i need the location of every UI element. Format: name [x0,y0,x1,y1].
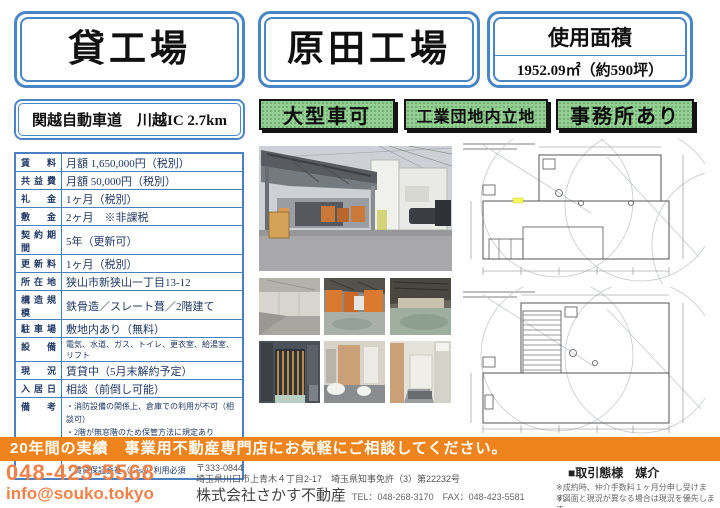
badge-office-available: 事務所あり [556,99,694,130]
phone-number: 048-423-5568 [6,460,155,486]
photo-restroom [324,341,385,403]
table-row-location: 所在地狭山市新狭山一丁目13-12 [16,272,242,290]
access-box: 関越自動車道 川越IC 2.7km [14,99,245,140]
table-row-equipment: 設備電気、水道、ガス、トイレ、更衣室、給湯室、リフト [16,337,242,361]
category-title: 貸工場 [68,31,191,68]
usable-area-value: 1952.09㎡（約590坪） [517,56,663,80]
table-row-structure: 構造規模鉄骨造／スレート葺／2階建て [16,290,242,319]
photo-interior-empty-room [259,278,320,335]
table-row-renewal-fee: 更新料1ヶ月（税別） [16,254,242,272]
table-row-key-money: 礼金1ヶ月（税別） [16,189,242,207]
table-row-common-fee: 共益費月額 50,000円（税別） [16,171,242,189]
property-name-title: 原田工場 [287,31,451,68]
property-flyer: 貸工場 原田工場 使用面積 1952.09㎡（約590坪） 関越自動車道 川越I… [0,0,720,508]
disclaimer-note: ※図面と現況が異なる場合は現況を優先します。 [556,493,720,508]
tel-fax: TEL：048-268-3170 FAX：048-423-5581 [352,490,525,503]
remark-line: ・消防設備の関係上、倉庫での利用が不可（相談可） [66,401,238,427]
property-name-box: 原田工場 [258,11,480,88]
transaction-type: ■取引態様 媒介 [568,464,659,481]
table-row-current-status: 現況賃貸中（5月末解約予定） [16,361,242,379]
access-text: 関越自動車道 川越IC 2.7km [32,109,227,130]
table-row-deposit: 敷金2ヶ月 ※非課税 [16,207,242,225]
company-name: 株式会社さかす不動産 [196,484,346,505]
badge-large-vehicle-ok: 大型車可 [259,99,395,130]
email-address: info@souko.tokyo [6,484,154,504]
photo-factory-exterior [259,146,452,271]
category-box: 貸工場 [14,11,245,88]
photo-freight-lift [259,341,320,403]
photo-hallway [390,341,451,403]
usable-area-label: 使用面積 [495,20,685,56]
table-row-rent: 賃料月額 1,650,000円（税別） [16,154,242,171]
usable-area-box: 使用面積 1952.09㎡（約590坪） [487,11,693,88]
photo-warehouse-floor [390,278,451,335]
floor-plan-1f [455,139,705,285]
table-row-contract-term: 契約期間5年（更新可） [16,225,242,254]
company-line: 株式会社さかす不動産 TEL：048-268-3170 FAX：048-423-… [196,484,525,505]
badge-industrial-park: 工業団地内立地 [404,99,548,130]
floor-plan-2f [455,287,705,435]
table-row-move-in: 入居日相談（前倒し可能） [16,379,242,397]
spec-table: 賃料月額 1,650,000円（税別） 共益費月額 50,000円（税別） 礼金… [14,152,244,480]
table-row-parking: 駐車場敷地内あり（無料） [16,319,242,337]
photo-orange-partitions [324,278,385,335]
promo-banner: 20年間の実績 事業用不動産専門店にお気軽にご相談してください。 [0,437,720,461]
